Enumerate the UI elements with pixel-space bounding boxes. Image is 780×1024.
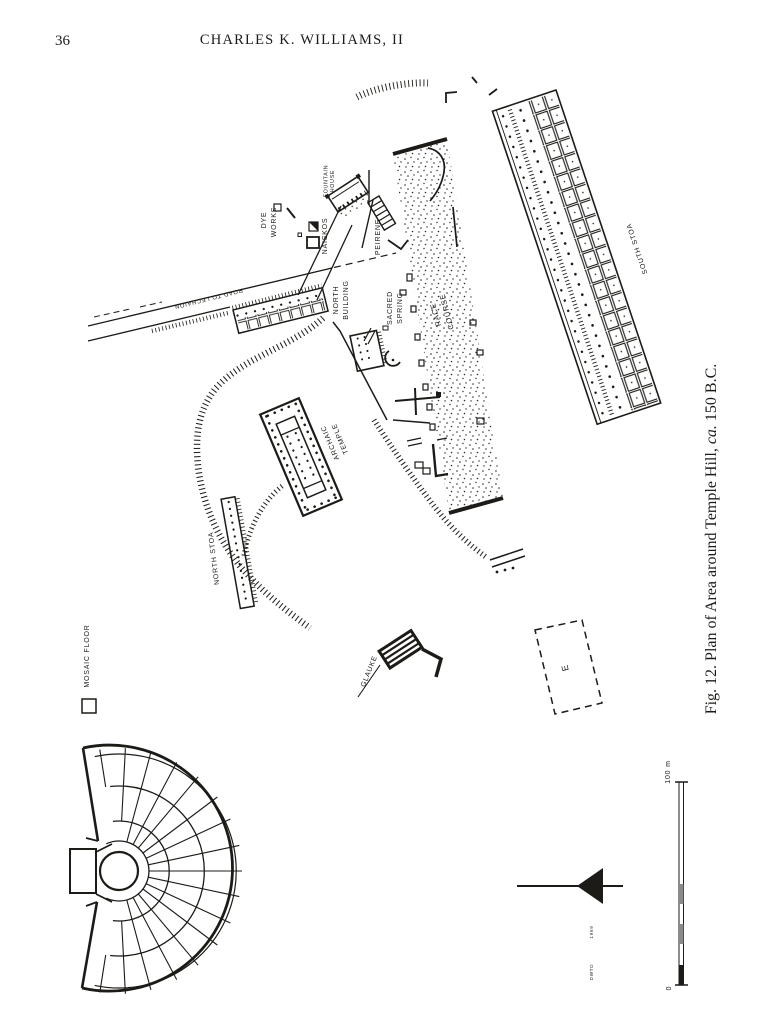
label-south-stoa: SOUTH STOA — [626, 222, 650, 275]
caption-fig-number: Fig. 12. — [703, 665, 720, 714]
label-building-e: E — [559, 663, 570, 672]
plan-labels: FOUNTAIN HOUSE DYE WORKS NAISKOS PEIRENE… — [84, 165, 649, 981]
scale-zero-label: 0 — [666, 986, 673, 991]
theater — [70, 745, 242, 994]
label-north-building-2: BUILDING — [343, 280, 350, 319]
north-stoa — [221, 496, 257, 608]
dye-works-structures — [274, 204, 302, 237]
north-building — [232, 285, 328, 333]
caption-era: B.C. — [703, 364, 720, 393]
scale-max-label: 100 m — [665, 760, 672, 783]
document-page: 36 CHARLES K. WILLIAMS, II — [0, 0, 780, 1024]
naiskos-structures — [307, 222, 319, 248]
credit-year: 1969 — [589, 925, 594, 938]
label-fountain-house-2: HOUSE — [330, 170, 336, 192]
label-dye-works-2: WORKS — [271, 207, 278, 237]
figure-caption: Fig. 12. Plan of Area around Temple Hill… — [703, 364, 720, 715]
south-stoa — [492, 90, 660, 424]
archaic-temple — [260, 398, 342, 516]
caption-circa: ca. — [703, 425, 720, 444]
label-peirene: PEIRENE — [375, 219, 382, 255]
site-plan-figure: 100 m 0 FOUNTAIN HOUSE DYE WORKS NAISKOS… — [0, 0, 780, 1024]
scale-bar: 100 m 0 — [665, 760, 688, 990]
label-naiskos: NAISKOS — [322, 218, 329, 255]
label-sacred-spring-2: SPRING — [397, 292, 404, 324]
credit-initials: DWTD — [589, 964, 594, 981]
label-dye-works: DYE — [261, 212, 268, 229]
label-north-building: NORTH — [333, 286, 340, 315]
label-mosaic-floor: MOSAIC FLOOR — [84, 624, 91, 687]
caption-date: 150 — [703, 393, 720, 425]
caption-text: Plan of Area around Temple Hill, — [703, 444, 720, 665]
mosaic-floor-symbol — [82, 699, 96, 713]
label-sacred-spring: SACRED — [387, 291, 394, 325]
north-arrow-icon — [517, 868, 623, 904]
label-fountain-house: FOUNTAIN — [324, 165, 330, 198]
